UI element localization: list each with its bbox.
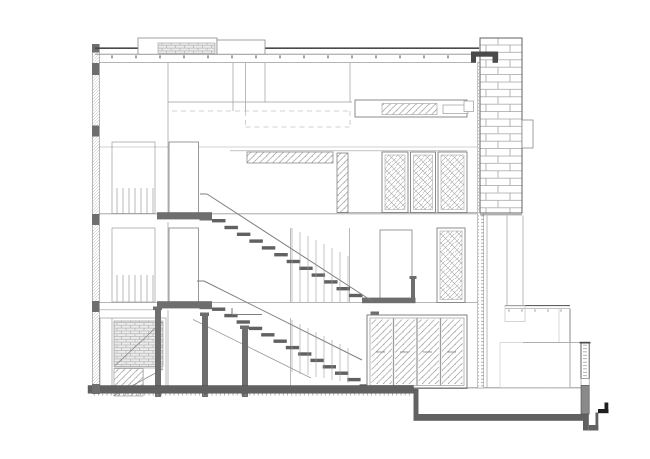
boundary-wall-gap (581, 379, 589, 386)
treads-upper (274, 253, 288, 256)
newel-post-cap (410, 276, 417, 279)
left-wall-block-5 (92, 301, 100, 312)
ground-slab (88, 386, 609, 431)
post-3-cap (240, 326, 249, 330)
outside-ground-hatch (414, 388, 581, 392)
section-drawing-canvas (0, 0, 650, 459)
door-mid-storey-left (169, 228, 199, 302)
rooflight-frame-2 (217, 40, 265, 54)
extension-elevation (500, 343, 570, 388)
left-wall-block-6 (92, 384, 100, 394)
post-2 (202, 314, 208, 397)
clerestory-glass (382, 104, 437, 115)
handrail-lower (204, 281, 362, 360)
parapet-cap-leg-right (493, 57, 499, 63)
treads-lower (274, 340, 287, 343)
treads-lower (249, 327, 262, 330)
treads-upper (312, 273, 326, 276)
treads-upper (299, 267, 313, 270)
architectural-section-svg (0, 0, 650, 459)
boundary-wall-base (581, 386, 589, 415)
drain-bar (598, 409, 609, 413)
landing-first-floor (362, 298, 416, 304)
narrow-window-glass (337, 153, 348, 213)
post-4-cap (371, 312, 380, 316)
window-3-glass (441, 155, 464, 210)
treads-lower (212, 308, 225, 311)
left-wall-block-4 (92, 214, 100, 225)
glazed-rear-door (367, 315, 467, 389)
treads-upper (212, 219, 226, 222)
boundary-wall-glazing (581, 343, 589, 379)
tread-start-upper (200, 217, 213, 221)
treads-lower (237, 320, 250, 323)
lower-slab (414, 414, 584, 421)
sump-right (596, 413, 599, 431)
parapet-cap-leg-left (471, 57, 476, 63)
treads-lower (335, 372, 348, 375)
left-wall-block-3 (92, 126, 100, 137)
window-band-glass (247, 152, 333, 163)
door-mid-storey-right (380, 230, 412, 303)
ground-storey (100, 307, 379, 398)
treads-upper (349, 294, 363, 297)
treads-lower (261, 333, 274, 336)
treads-lower (286, 346, 299, 349)
treads-upper (249, 239, 263, 242)
treads-upper (224, 226, 238, 229)
main-slab-hatch (92, 394, 412, 399)
treads-upper (237, 233, 251, 236)
rear-extension (487, 216, 591, 415)
treads-upper (287, 260, 301, 263)
main-slab (88, 386, 414, 394)
door-top-storey (169, 142, 199, 214)
rooflight-glazing (158, 43, 215, 54)
treads-upper (262, 246, 276, 249)
tread-start-lower (200, 305, 213, 309)
brick-party-wall (480, 38, 522, 213)
newel-post (411, 278, 415, 301)
post-2-cap (200, 313, 209, 317)
treads-upper (324, 280, 338, 283)
window-mid-right-glass (440, 231, 462, 300)
stair-box-mid (112, 228, 155, 302)
post-1 (155, 308, 161, 397)
window-2-glass (414, 155, 433, 210)
drain-step (605, 403, 609, 410)
upper-windows (230, 100, 474, 213)
sump-left (583, 414, 589, 431)
treads-lower (323, 365, 336, 368)
extension-parapet-box (505, 306, 525, 322)
brick-wall-nib (522, 120, 533, 148)
left-wall-block-2 (92, 63, 100, 75)
post-1-cap (153, 307, 162, 311)
stair-box-top (112, 142, 155, 214)
parapet-cap-bar (471, 52, 498, 57)
window-1-glass (385, 155, 405, 210)
clerestory-vent-box-2 (464, 101, 474, 112)
treads-lower (310, 359, 323, 362)
treads-lower (347, 378, 360, 381)
